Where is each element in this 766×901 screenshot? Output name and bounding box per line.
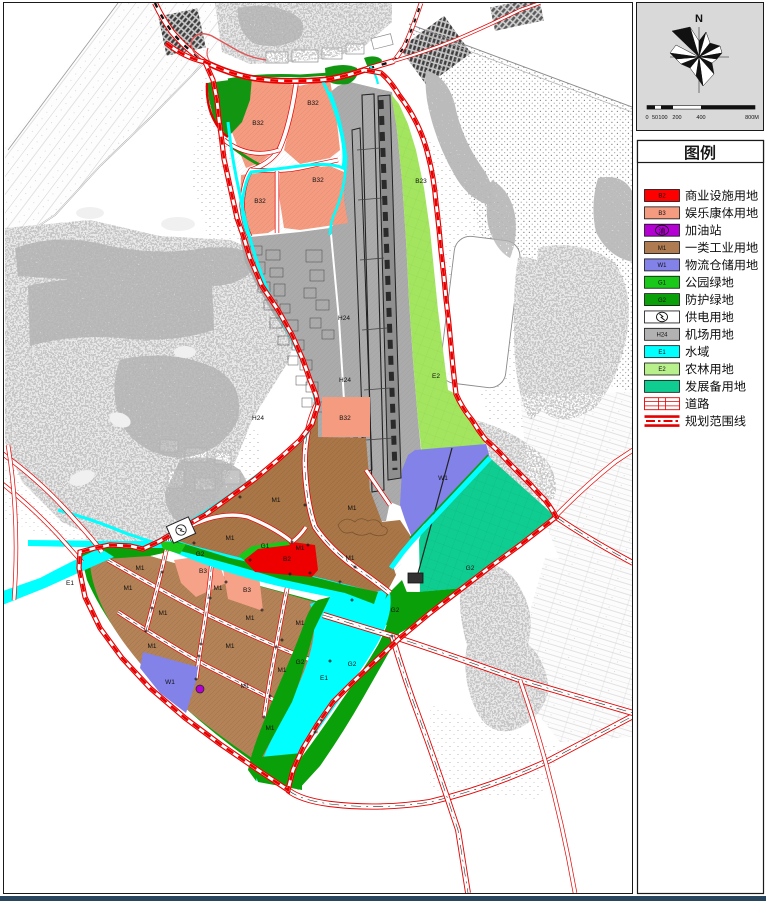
svg-text:B3: B3 bbox=[658, 211, 666, 217]
svg-text:B32: B32 bbox=[254, 198, 266, 205]
svg-text:M1: M1 bbox=[213, 585, 222, 592]
svg-text:W1: W1 bbox=[658, 263, 668, 269]
svg-text:E2: E2 bbox=[658, 367, 666, 373]
svg-text:G2: G2 bbox=[296, 659, 305, 666]
svg-text:M1: M1 bbox=[295, 545, 304, 552]
svg-text:M1: M1 bbox=[347, 505, 356, 512]
svg-text:B3: B3 bbox=[199, 568, 207, 575]
svg-text:E1: E1 bbox=[658, 350, 666, 356]
svg-text:W1: W1 bbox=[438, 475, 448, 482]
svg-text:W1: W1 bbox=[165, 679, 175, 686]
svg-text:M1: M1 bbox=[658, 246, 667, 252]
svg-text:M1: M1 bbox=[158, 610, 167, 617]
svg-text:B32: B32 bbox=[339, 415, 351, 422]
svg-text:B23: B23 bbox=[415, 178, 427, 185]
svg-text:B2: B2 bbox=[658, 194, 666, 200]
svg-text:50: 50 bbox=[652, 115, 658, 121]
svg-text:M1: M1 bbox=[265, 725, 274, 732]
svg-text:G2: G2 bbox=[391, 607, 400, 614]
svg-text:M1: M1 bbox=[277, 667, 286, 674]
svg-text:400: 400 bbox=[696, 115, 705, 121]
svg-text:B32: B32 bbox=[312, 177, 324, 184]
svg-text:G1: G1 bbox=[658, 280, 667, 286]
svg-text:M1: M1 bbox=[225, 643, 234, 650]
svg-text:100: 100 bbox=[658, 115, 667, 121]
svg-text:M1: M1 bbox=[240, 683, 249, 690]
svg-text:G2: G2 bbox=[348, 661, 357, 668]
svg-text:E1: E1 bbox=[320, 675, 328, 682]
svg-text:G1: G1 bbox=[261, 543, 270, 550]
svg-text:M1: M1 bbox=[123, 585, 132, 592]
svg-text:M1: M1 bbox=[147, 643, 156, 650]
svg-text:B2: B2 bbox=[283, 556, 291, 563]
svg-text:M1: M1 bbox=[295, 620, 304, 627]
svg-text:200: 200 bbox=[672, 115, 681, 121]
svg-text:E2: E2 bbox=[432, 373, 440, 380]
svg-text:M1: M1 bbox=[345, 555, 354, 562]
svg-text:B32: B32 bbox=[307, 100, 319, 107]
svg-text:N: N bbox=[695, 13, 703, 25]
svg-text:M1: M1 bbox=[135, 565, 144, 572]
svg-text:M1: M1 bbox=[225, 535, 234, 542]
svg-text:H24: H24 bbox=[252, 415, 264, 422]
svg-text:H24: H24 bbox=[338, 315, 350, 322]
svg-text:0: 0 bbox=[645, 115, 648, 121]
svg-text:G2: G2 bbox=[466, 565, 475, 572]
svg-text:G2: G2 bbox=[196, 551, 205, 558]
svg-text:M1: M1 bbox=[245, 615, 254, 622]
svg-text:B3: B3 bbox=[243, 587, 251, 594]
svg-text:B32: B32 bbox=[252, 120, 264, 127]
svg-text:E1: E1 bbox=[66, 580, 74, 587]
svg-text:800M: 800M bbox=[745, 115, 759, 121]
svg-text:G2: G2 bbox=[658, 298, 667, 304]
svg-text:H24: H24 bbox=[656, 333, 668, 339]
svg-text:M1: M1 bbox=[271, 497, 280, 504]
svg-text:H24: H24 bbox=[339, 377, 351, 384]
